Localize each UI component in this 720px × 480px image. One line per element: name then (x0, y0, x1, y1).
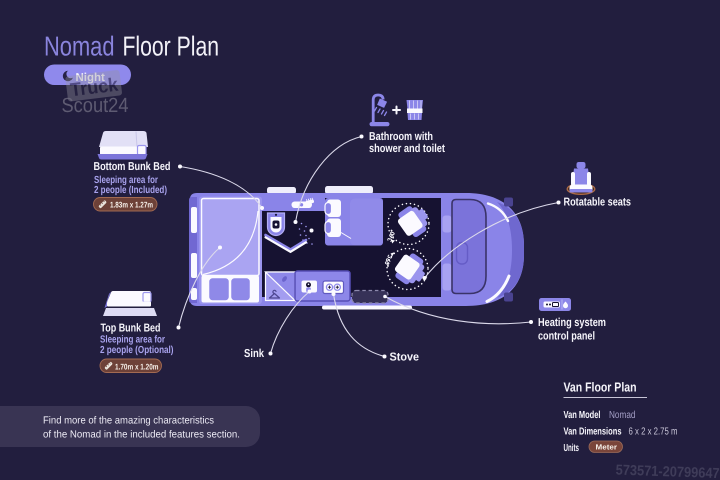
svg-text:Nomad: Nomad (609, 410, 636, 421)
svg-text:1.70m x 1.20m: 1.70m x 1.20m (115, 363, 159, 372)
svg-text:Bottom Bunk Bed: Bottom Bunk Bed (94, 161, 171, 173)
svg-text:Van Dimensions: Van Dimensions (564, 427, 622, 438)
svg-text:of the Nomad in the included f: of the Nomad in the included features se… (43, 430, 240, 441)
svg-text:Meter: Meter (596, 443, 618, 452)
svg-text:2 people (Optional): 2 people (Optional) (100, 345, 174, 356)
svg-text:1.83m x 1.27m: 1.83m x 1.27m (110, 201, 153, 210)
svg-text:shower and toilet: shower and toilet (369, 143, 445, 155)
svg-text:Rotatable seats: Rotatable seats (564, 197, 632, 209)
svg-text:Nomad: Nomad (44, 31, 115, 62)
svg-text:Heating system: Heating system (538, 317, 606, 329)
svg-text:Units: Units (564, 443, 580, 454)
svg-text:Van Model: Van Model (564, 410, 601, 421)
svg-text:Sink: Sink (244, 348, 264, 360)
svg-text:Floor Plan: Floor Plan (123, 31, 220, 62)
svg-text:573571-20799647: 573571-20799647 (615, 463, 719, 480)
svg-text:Sleeping area for: Sleeping area for (100, 335, 165, 346)
svg-text:Bathroom with: Bathroom with (369, 131, 433, 143)
svg-text:Scout24: Scout24 (62, 94, 129, 117)
svg-text:Find more of the amazing chara: Find more of the amazing characteristics (43, 416, 214, 427)
svg-text:Stove: Stove (390, 352, 420, 364)
svg-text:Top Bunk Bed: Top Bunk Bed (101, 323, 161, 335)
svg-text:control panel: control panel (538, 331, 595, 343)
svg-text:2 people (Included): 2 people (Included) (94, 185, 167, 196)
svg-text:Van Floor Plan: Van Floor Plan (564, 380, 637, 395)
svg-text:6 x 2 x 2.75 m: 6 x 2 x 2.75 m (629, 427, 678, 438)
